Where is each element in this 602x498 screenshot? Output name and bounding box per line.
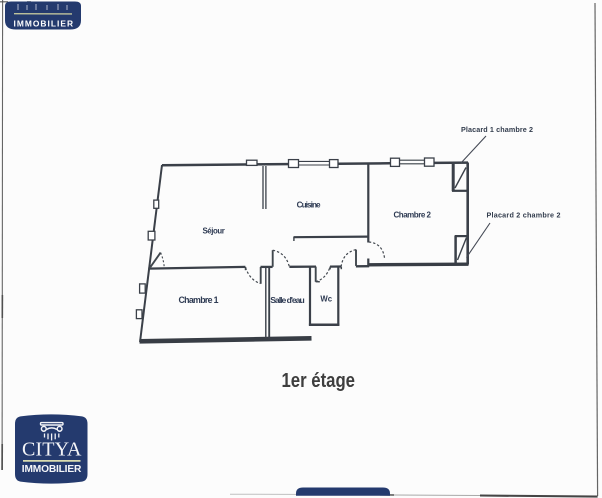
svg-text:Wc: Wc — [320, 294, 332, 303]
svg-text:1er étage: 1er étage — [282, 370, 356, 392]
svg-text:Placard 2 chambre 2: Placard 2 chambre 2 — [487, 211, 561, 220]
svg-text:Salle d'eau: Salle d'eau — [270, 295, 305, 305]
svg-text:IMMOBILIER: IMMOBILIER — [14, 19, 74, 29]
svg-text:CITYA: CITYA — [22, 439, 82, 461]
svg-text:Placard 1 chambre 2: Placard 1 chambre 2 — [461, 125, 533, 134]
svg-text:Chambre 2: Chambre 2 — [394, 210, 432, 219]
svg-text:Chambre 1: Chambre 1 — [179, 295, 219, 305]
svg-text:IMMOBILIER: IMMOBILIER — [22, 464, 82, 475]
svg-text:Cuisine: Cuisine — [297, 200, 321, 209]
svg-text:Séjour: Séjour — [203, 227, 225, 236]
